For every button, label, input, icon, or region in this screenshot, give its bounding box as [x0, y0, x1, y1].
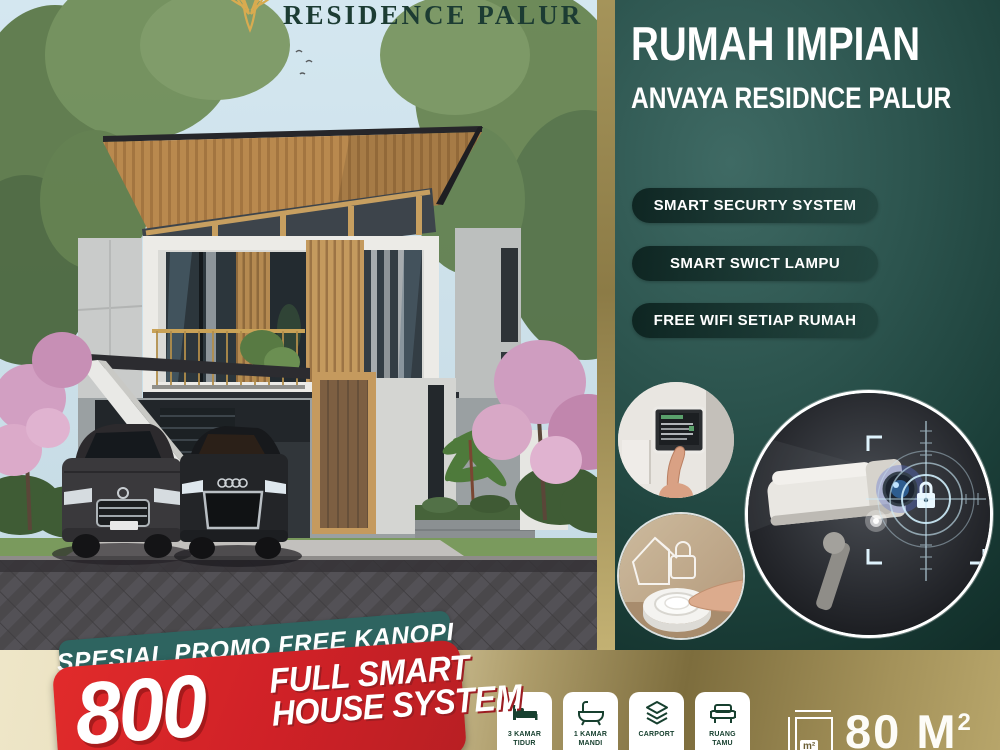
cctv-camera-photo [745, 390, 993, 638]
feature-pill-security: SMART SECURTY SYSTEM [632, 188, 878, 223]
area-value: 80 M2 [845, 708, 971, 750]
headline-title-text: RUMAH IMPIAN [631, 20, 920, 67]
spec-label: RUANGTAMU [709, 730, 736, 748]
carport-icon [643, 699, 671, 727]
building-area: m² 80 M2 [786, 708, 971, 750]
spec-label: 1 KAMARMANDI [574, 730, 607, 748]
square-meter-icon: m² [786, 708, 832, 750]
smart-panel-photo [618, 382, 734, 498]
gold-divider [597, 0, 615, 650]
house-render-illustration [0, 0, 600, 650]
property-poster: RESIDENCE PALUR RUMAH IMPIAN ANVAYA RESI… [0, 0, 1000, 750]
house-photo [0, 0, 600, 650]
spec-card-carport: CARPORT [629, 692, 684, 750]
bathtub-icon [576, 699, 606, 727]
sofa-icon [708, 699, 738, 727]
smart-button-photo [617, 512, 745, 640]
headline-subtitle-text: ANVAYA RESIDNCE PALUR [631, 84, 951, 114]
lotus-logo-icon [205, 0, 295, 53]
spec-label: 3 KAMARTIDUR [508, 730, 541, 748]
spec-label: CARPORT [638, 730, 674, 739]
spec-card-bathroom: 1 KAMARMANDI [563, 692, 618, 750]
feature-pill-wifi: FREE WIFI SETIAP RUMAH [632, 303, 878, 338]
feature-pill-switch-lamp: SMART SWICT LAMPU [632, 246, 878, 281]
logo-residence-text: RESIDENCE PALUR [283, 0, 583, 31]
headline-subtitle: ANVAYA RESIDNCE PALUR [631, 84, 1000, 114]
square-meter-chip: m² [800, 740, 818, 750]
headline-title: RUMAH IMPIAN [631, 20, 983, 67]
promo-price: 800 [72, 662, 207, 750]
spec-card-livingroom: RUANGTAMU [695, 692, 750, 750]
